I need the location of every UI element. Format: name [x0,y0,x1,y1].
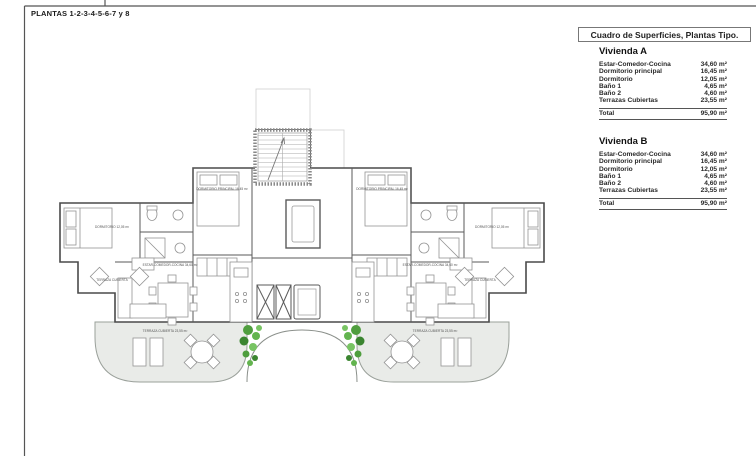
area-label: Terrazas Cubiertas [599,97,658,104]
area-row: Dormitorio12,05 m² [599,166,727,173]
area-label: Baño 1 [599,83,621,90]
area-label: Estar-Comedor-Cocina [599,151,671,158]
area-row: Terrazas Cubiertas23,55 m² [599,187,727,194]
area-label: Baño 2 [599,180,621,187]
bed-principal-left [197,172,239,226]
area-row: Baño 24,60 m² [599,90,727,97]
total-value: 95,90 m² [701,200,727,207]
vivienda-b-section: Vivienda B Estar-Comedor-Cocina34,60 m² … [599,136,727,210]
area-value: 12,05 m² [701,76,727,83]
panel-title-box: Cuadro de Superficies, Plantas Tipo. [578,27,751,42]
area-value: 4,65 m² [704,173,727,180]
area-label: Dormitorio principal [599,68,662,75]
room-label: TERRAZA CUBIERTA [464,278,496,282]
room-label: TERRAZA CUBIERTA [96,278,128,282]
room-label: DORMITORIO PRINCIPAL 16,45 m² [196,187,247,191]
bed-principal-right [365,172,407,226]
vivienda-a-heading: Vivienda A [599,46,727,57]
area-label: Estar-Comedor-Cocina [599,61,671,68]
area-label: Dormitorio principal [599,158,662,165]
staircase [255,130,310,184]
vivienda-a-section: Vivienda A Estar-Comedor-Cocina34,60 m² … [599,46,727,120]
area-value: 34,60 m² [701,151,727,158]
area-label: Terrazas Cubiertas [599,187,658,194]
vivienda-b-heading: Vivienda B [599,136,727,147]
room-label: DORMITORIO 12,05 m² [95,225,129,229]
area-row: Baño 14,65 m² [599,83,727,90]
area-value: 23,55 m² [701,97,727,104]
sheet-title: PLANTAS 1-2-3-4-5-6-7 y 8 [31,9,130,18]
area-row: Baño 24,60 m² [599,180,727,187]
total-label: Total [599,110,614,117]
room-label: ESTAR-COMEDOR-COCINA 34,60 m² [403,263,458,267]
area-label: Dormitorio [599,76,633,83]
area-row: Dormitorio12,05 m² [599,76,727,83]
total-label: Total [599,200,614,207]
room-label: DORMITORIO PRINCIPAL 16,45 m² [356,187,407,191]
area-value: 12,05 m² [701,166,727,173]
entrance-arch [247,330,357,382]
kitchen-left [230,262,252,322]
area-value: 4,60 m² [704,90,727,97]
elevator-core [257,285,320,319]
room-label: ESTAR-COMEDOR-COCINA 34,60 m² [143,263,198,267]
room-label: DORMITORIO 12,05 m² [475,225,509,229]
area-row: Baño 14,65 m² [599,173,727,180]
panel-title: Cuadro de Superficies, Plantas Tipo. [591,30,739,40]
total-row: Total95,90 m² [599,198,727,210]
kitchen-right [352,262,374,322]
room-label: TERRAZA CUBIERTA 23,55 m² [413,329,458,333]
total-value: 95,90 m² [701,110,727,117]
area-value: 4,60 m² [704,180,727,187]
area-value: 4,65 m² [704,83,727,90]
area-value: 16,45 m² [701,68,727,75]
area-row: Dormitorio principal16,45 m² [599,68,727,75]
area-value: 16,45 m² [701,158,727,165]
area-row: Terrazas Cubiertas23,55 m² [599,97,727,104]
area-value: 34,60 m² [701,61,727,68]
room-label: TERRAZA CUBIERTA 23,55 m² [143,329,188,333]
area-row: Estar-Comedor-Cocina34,60 m² [599,61,727,68]
area-row: Estar-Comedor-Cocina34,60 m² [599,151,727,158]
total-row: Total95,90 m² [599,108,727,120]
surface-table-panel: Cuadro de Superficies, Plantas Tipo. Viv… [578,0,751,456]
elevator-upper [286,200,320,248]
area-label: Baño 2 [599,90,621,97]
area-label: Baño 1 [599,173,621,180]
area-row: Dormitorio principal16,45 m² [599,158,727,165]
area-value: 23,55 m² [701,187,727,194]
area-label: Dormitorio [599,166,633,173]
